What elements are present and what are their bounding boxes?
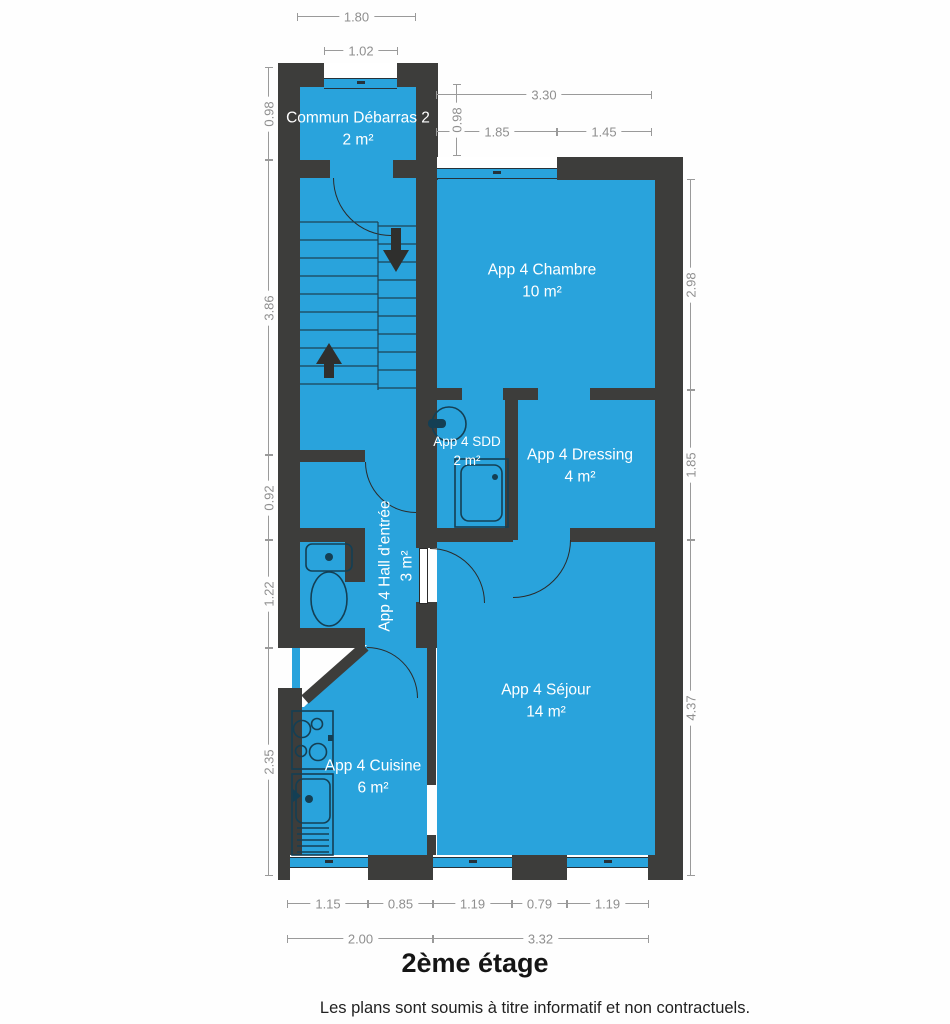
dimension-wc-left: 1.22 [268, 540, 269, 648]
room-label-sdd: App 4 SDD2 m² [433, 433, 501, 471]
room-label-sejour: App 4 Séjour14 m² [501, 679, 591, 722]
dimension-chambre-total: 3.30 [437, 94, 651, 95]
room-label-debarras: Commun Débarras 22 m² [286, 107, 430, 150]
fixtures-layer [0, 0, 950, 1024]
dimension-bottom-win2: 1.19 [433, 903, 512, 904]
dimension-bottom-wall1: 0.85 [368, 903, 433, 904]
dimension-wc-upper-left: 0.92 [268, 455, 269, 540]
disclaimer-text: Les plans sont soumis à titre informatif… [60, 999, 950, 1018]
dimension-top-outer: 1.80 [298, 16, 415, 17]
room-label-hall: App 4 Hall d'entrée3 m² [374, 500, 417, 631]
dimension-bottom-wall2: 0.79 [512, 903, 567, 904]
dimension-bottom-total-left: 2.00 [288, 938, 433, 939]
stairs-down-arrow-icon [383, 228, 409, 272]
dimension-chambre-right: 2.98 [690, 180, 691, 390]
dimension-top-window: 1.02 [325, 50, 397, 51]
dimension-bottom-total-right: 3.32 [433, 938, 648, 939]
toilet-icon [306, 544, 352, 626]
dimension-stairs-left: 3.86 [268, 160, 269, 455]
dimension-dressing-right: 1.85 [690, 390, 691, 540]
dimension-bottom-win1: 1.15 [288, 903, 368, 904]
room-label-chambre: App 4 Chambre10 m² [488, 259, 597, 302]
dimension-debarras-right: 0.98 [456, 85, 457, 155]
dimension-chambre-wall: 1.45 [557, 131, 651, 132]
floor-title: 2ème étage [0, 948, 950, 979]
dimension-bottom-win3: 1.19 [567, 903, 648, 904]
room-label-dressing: App 4 Dressing4 m² [527, 444, 633, 487]
dimension-debarras-left: 0.98 [268, 68, 269, 160]
floor-plan: Commun Débarras 22 m² App 4 Chambre10 m²… [0, 0, 950, 1024]
room-label-cuisine: App 4 Cuisine6 m² [325, 755, 422, 798]
dimension-cuisine-left: 2.35 [268, 648, 269, 875]
dimension-sejour-right: 4.37 [690, 540, 691, 875]
